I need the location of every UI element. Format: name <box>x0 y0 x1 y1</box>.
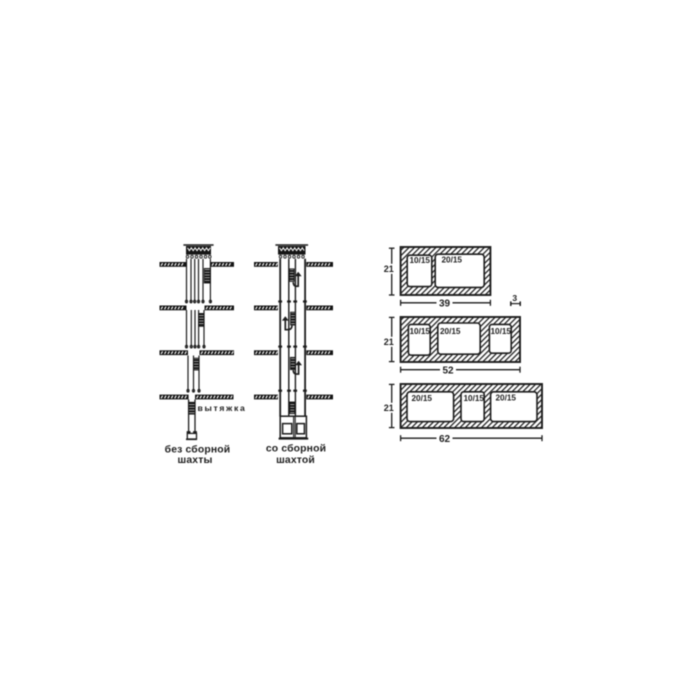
svg-text:вытяжка: вытяжка <box>198 403 247 413</box>
svg-text:21: 21 <box>384 337 394 347</box>
svg-text:20/15: 20/15 <box>442 256 463 265</box>
svg-text:20/15: 20/15 <box>496 394 517 403</box>
svg-text:39: 39 <box>439 298 451 309</box>
svg-text:21: 21 <box>384 264 394 274</box>
svg-text:10/15: 10/15 <box>410 256 431 265</box>
svg-text:10/15: 10/15 <box>491 327 512 336</box>
svg-text:21: 21 <box>384 403 394 413</box>
svg-text:10/15: 10/15 <box>410 327 431 336</box>
svg-text:20/15: 20/15 <box>412 394 433 403</box>
svg-text:52: 52 <box>442 365 454 376</box>
svg-text:шахтой: шахтой <box>276 455 315 466</box>
svg-text:без сборной: без сборной <box>165 444 231 456</box>
svg-text:62: 62 <box>439 434 451 445</box>
svg-text:шахты: шахты <box>178 455 213 466</box>
svg-text:20/15: 20/15 <box>440 327 461 336</box>
svg-text:со сборной: со сборной <box>266 443 326 455</box>
svg-text:10/15: 10/15 <box>464 394 485 403</box>
svg-text:3: 3 <box>512 293 517 303</box>
